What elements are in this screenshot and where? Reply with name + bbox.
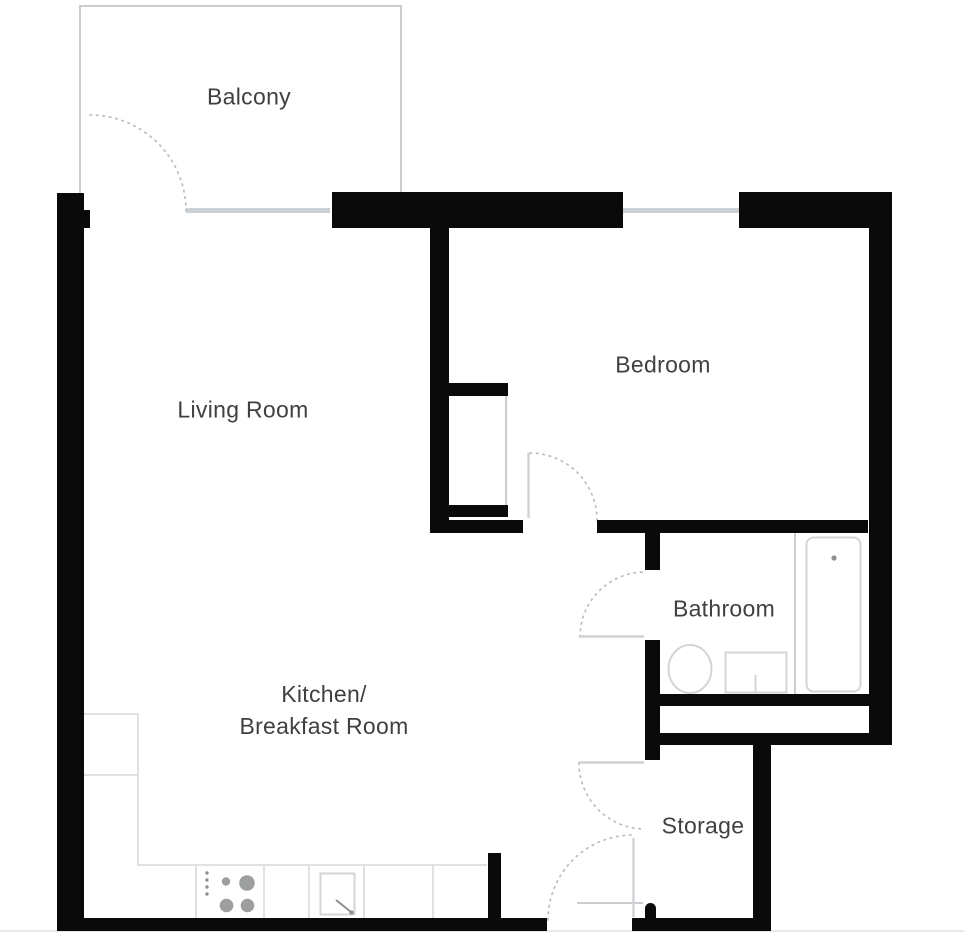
wall-bathroom-south [645, 694, 872, 706]
wall-bedroom-south-east [597, 520, 868, 533]
stove-burner-1 [222, 877, 230, 885]
balcony-door-swing [90, 115, 186, 211]
stove-burner-3 [220, 899, 234, 913]
floor-plan: Balcony Living Room Bedroom Bathroom Sto… [0, 0, 964, 933]
wall-bathroom-west [645, 640, 660, 760]
wall-storage-door-post [645, 903, 656, 924]
wall-entry-stub [488, 853, 501, 931]
stove-knob-3 [205, 885, 208, 888]
bathroom-door-swing [580, 572, 645, 637]
room-label-kitchen: Kitchen/ Breakfast Room [239, 678, 408, 742]
wall-exterior-top-right-segment [739, 192, 892, 228]
wall-exterior-bottom-kitchen [57, 918, 547, 931]
wall-exterior-top-left-segment [332, 192, 623, 228]
room-label-kitchen-line2: Breakfast Room [239, 710, 408, 742]
wall-wardrobe-niche-top [430, 383, 508, 396]
wall-wardrobe-niche-bottom [438, 505, 508, 517]
entrance-door-swing [548, 835, 633, 920]
bathtub [807, 538, 861, 692]
room-label-living-room: Living Room [177, 397, 308, 424]
wall-storage-east [753, 745, 771, 931]
storage-door-swing [579, 763, 645, 829]
room-label-bathroom: Bathroom [673, 596, 775, 623]
stove-burner-4 [241, 899, 255, 913]
wall-living-bedroom [430, 228, 449, 533]
room-label-storage: Storage [662, 813, 745, 840]
stove [205, 871, 255, 912]
stove-burner-2 [239, 875, 255, 891]
stove-knob-1 [205, 871, 208, 874]
room-label-bedroom: Bedroom [615, 352, 710, 379]
wall-exterior-left [57, 193, 84, 930]
stove-knob-4 [205, 892, 208, 895]
plan-symbols [0, 0, 964, 933]
kitchen-sink-tap-dot [349, 910, 353, 914]
wall-bedroom-south-west [430, 520, 523, 533]
toilet [669, 645, 712, 693]
wall-bathroom-west-upper-stub [645, 533, 660, 570]
wall-storage-north [645, 733, 890, 745]
room-label-kitchen-line1: Kitchen/ [239, 678, 408, 710]
bedroom-door-swing [530, 453, 597, 520]
stove-knob-2 [205, 878, 208, 881]
bathtub-drain-dot [831, 555, 836, 560]
wall-balcony-door-jamb [84, 210, 90, 228]
wall-exterior-right [869, 228, 892, 745]
room-label-balcony: Balcony [207, 84, 291, 111]
kitchen-sink [321, 874, 355, 915]
kitchen-sink-tap [336, 900, 351, 912]
